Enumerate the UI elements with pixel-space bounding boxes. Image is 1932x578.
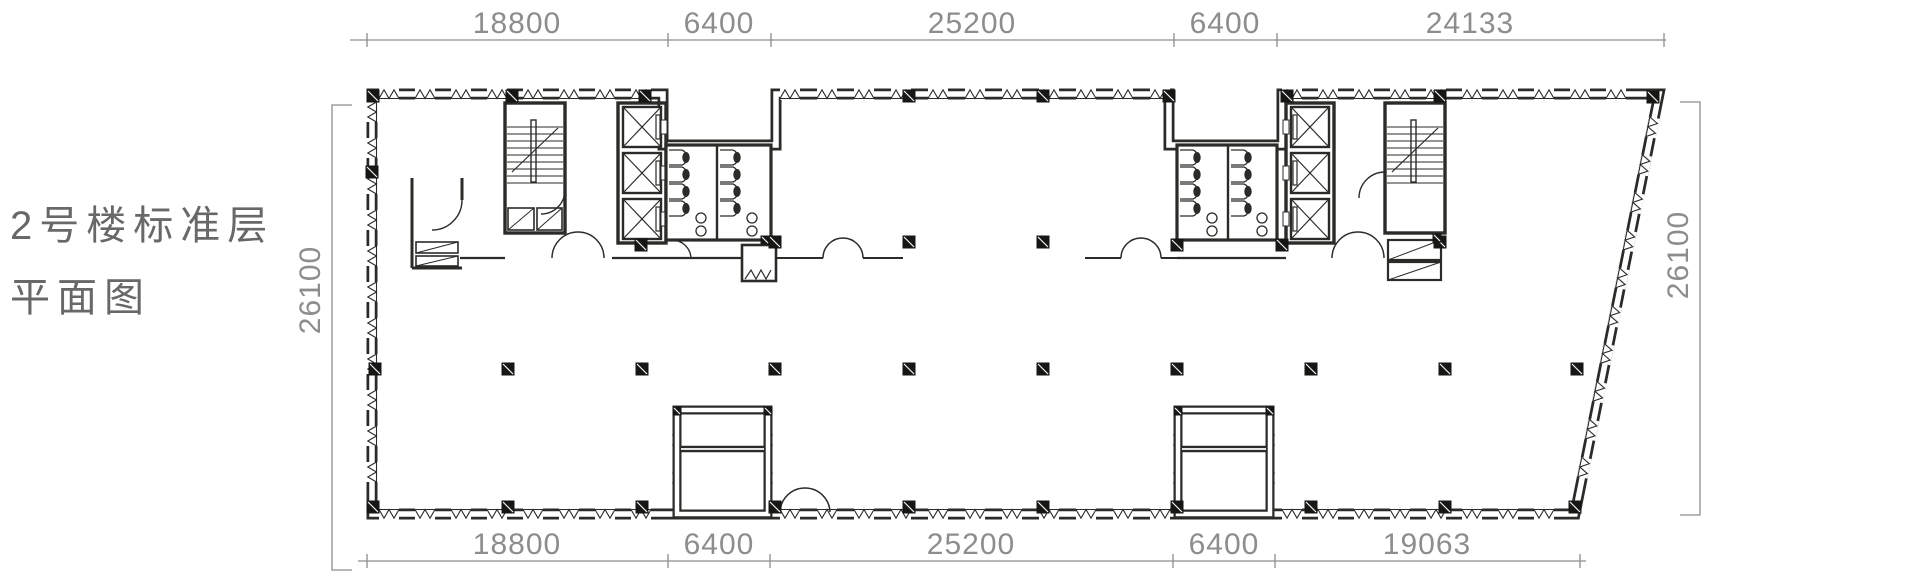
bottom-shaft-right	[1178, 410, 1270, 514]
dimension-line-right	[1680, 102, 1700, 515]
dim-label-left: 26100	[294, 246, 327, 334]
dim-label-bottom-5: 19063	[1383, 528, 1471, 561]
dimension-line-left	[332, 105, 352, 570]
dim-label-top-3: 25200	[928, 7, 1016, 40]
dim-label-right: 26100	[1662, 211, 1695, 299]
dim-label-bottom-4: 6400	[1189, 528, 1260, 561]
toilet-block-right	[1177, 145, 1277, 240]
bottom-shaft-left	[677, 410, 768, 514]
elevator-bank-right	[1283, 103, 1334, 243]
dim-label-bottom-2: 6400	[684, 528, 755, 561]
floor-plan-drawing: 18800 6400 25200 6400 24133 18800 6400 2…	[0, 0, 1932, 578]
floor-plan-page: 2号楼标准层 平面图	[0, 0, 1932, 578]
dim-label-bottom-1: 18800	[473, 528, 561, 561]
dim-label-top-2: 6400	[684, 7, 755, 40]
dim-label-top-5: 24133	[1426, 7, 1514, 40]
dim-label-top-1: 18800	[473, 7, 561, 40]
elevator-bank-left	[618, 103, 667, 243]
dim-label-top-4: 6400	[1190, 7, 1261, 40]
toilet-block-left	[666, 145, 771, 240]
dim-label-bottom-3: 25200	[927, 528, 1015, 561]
